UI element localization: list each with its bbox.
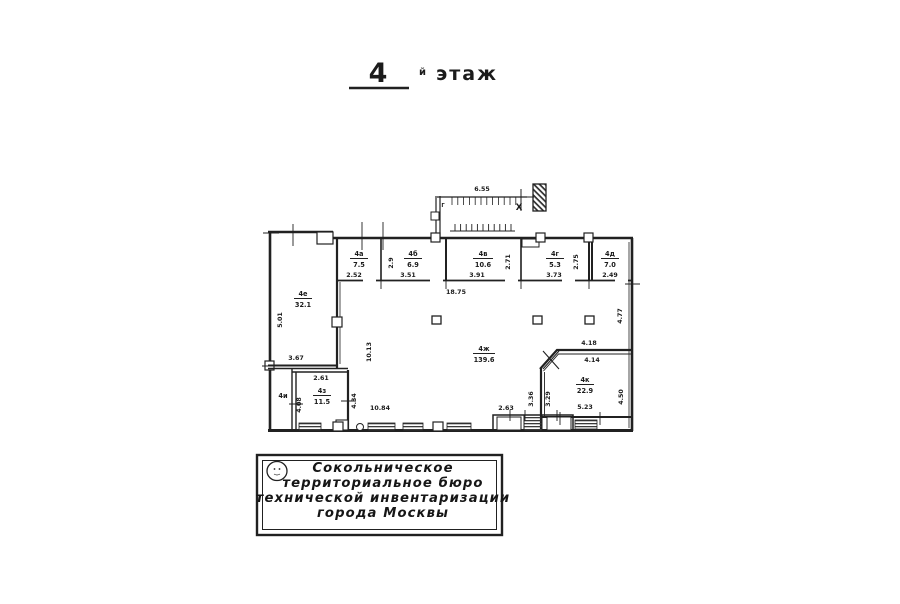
dim-room-4z-left: 4.08 [296, 397, 303, 413]
room-4v-area: 10.6 [475, 261, 492, 269]
stamp-line-3: технической инвентаризации [256, 491, 511, 506]
dim-room-4k-top: 4.18 [581, 340, 597, 347]
stamp-line-2: территориальное бюро [282, 475, 483, 491]
dim-room-4e-bottom: 3.67 [288, 355, 304, 362]
corner-mark: Г [441, 203, 445, 209]
floor-suffix: й [419, 67, 426, 78]
dim-hall-door: 2.63 [498, 405, 514, 412]
dim-room-4g-width: 3.73 [546, 272, 562, 279]
wall-pier [433, 422, 443, 431]
stamp-logo-dot [279, 468, 281, 470]
dim-room-4e-left: 5.01 [277, 312, 284, 328]
column [432, 316, 441, 324]
room-4z-id: 4з [318, 387, 327, 395]
room-4d-area: 7.0 [604, 261, 616, 269]
dim-room-4k-bottom: 5.23 [577, 404, 593, 411]
stamp-line-4: города Москвы [317, 506, 449, 521]
floor-number: 4 [369, 58, 388, 89]
dim-hall-right: 4.77 [617, 308, 624, 324]
room-4g-area: 5.3 [549, 261, 561, 269]
wall-column [332, 317, 342, 327]
cross-mark-lines [543, 351, 559, 369]
wall-pier [333, 422, 343, 431]
dim-hall-bottom: 10.84 [370, 405, 391, 412]
dim-room-4k-right: 4.50 [618, 389, 625, 405]
room-4a-id: 4а [354, 250, 363, 258]
room-4a-area: 7.5 [353, 261, 365, 269]
dim-room-4a-depth: 2.9 [388, 257, 395, 268]
room-4e-area: 32.1 [295, 301, 312, 309]
room-4k-area: 22.9 [577, 387, 594, 395]
wall-section-hatch [533, 184, 546, 211]
dim-room-4z-right: 4.34 [351, 393, 358, 409]
window [299, 423, 321, 431]
column [533, 316, 542, 324]
room-4i-id: 4и [278, 392, 288, 400]
dim-room-4g-depth: 2.75 [573, 254, 580, 270]
room-4d-id: 4д [605, 250, 615, 258]
window [368, 423, 395, 431]
balcony-railing-ticks [452, 197, 516, 205]
floor-plan-scan: 4 й этаж [0, 0, 900, 604]
dim-room-4k-inner-top: 4.14 [584, 357, 600, 364]
dim-room-4k-left-inner: 3.29 [545, 391, 552, 407]
window [575, 420, 597, 429]
terrace-railing-ticks [455, 224, 511, 231]
bti-stamp: Сокольническое территориальное бюро техн… [256, 455, 511, 535]
plan-labels: 6.55 Г X 4а 7.5 2.52 2.9 4б 6.9 3.51 4в … [277, 186, 625, 413]
page-title: 4 й этаж [349, 58, 498, 89]
room-4zh-id: 4ж [478, 345, 490, 353]
dim-room-4z-top: 2.61 [313, 375, 329, 382]
window [447, 423, 471, 431]
pilaster [317, 232, 333, 244]
dim-room-4v-depth: 2.71 [505, 254, 512, 270]
stamp-line-1: Сокольническое [312, 461, 453, 476]
dim-room-4a-width: 2.52 [346, 272, 362, 279]
dim-room-4d-width: 2.49 [602, 272, 618, 279]
floor-word: этаж [436, 63, 498, 85]
room-4k-id: 4к [580, 376, 590, 384]
column [585, 316, 594, 324]
room-4g-id: 4г [551, 250, 560, 258]
dim-hall-top: 18.75 [446, 289, 466, 296]
dim-balcony-length: 6.55 [474, 186, 490, 193]
room-4z-area: 11.5 [314, 398, 331, 406]
stamp-logo-dot [274, 468, 276, 470]
room-4e-id: 4е [298, 290, 308, 298]
room-4v-id: 4в [479, 250, 488, 258]
survey-point [357, 424, 364, 431]
room-4b-id: 4б [408, 250, 418, 258]
scanned-page: 4 й этаж [0, 0, 900, 604]
dim-room-4b-width: 3.51 [400, 272, 416, 279]
cross-mark: X [516, 203, 523, 213]
room-4zh-area: 139.6 [474, 356, 495, 364]
dim-room-4k-left-outer: 3.36 [528, 391, 535, 407]
dim-room-4v-width: 3.91 [469, 272, 485, 279]
dim-hall-left: 10.13 [366, 342, 373, 362]
window [403, 423, 423, 431]
columns [332, 316, 594, 327]
room-4b-area: 6.9 [407, 261, 419, 269]
